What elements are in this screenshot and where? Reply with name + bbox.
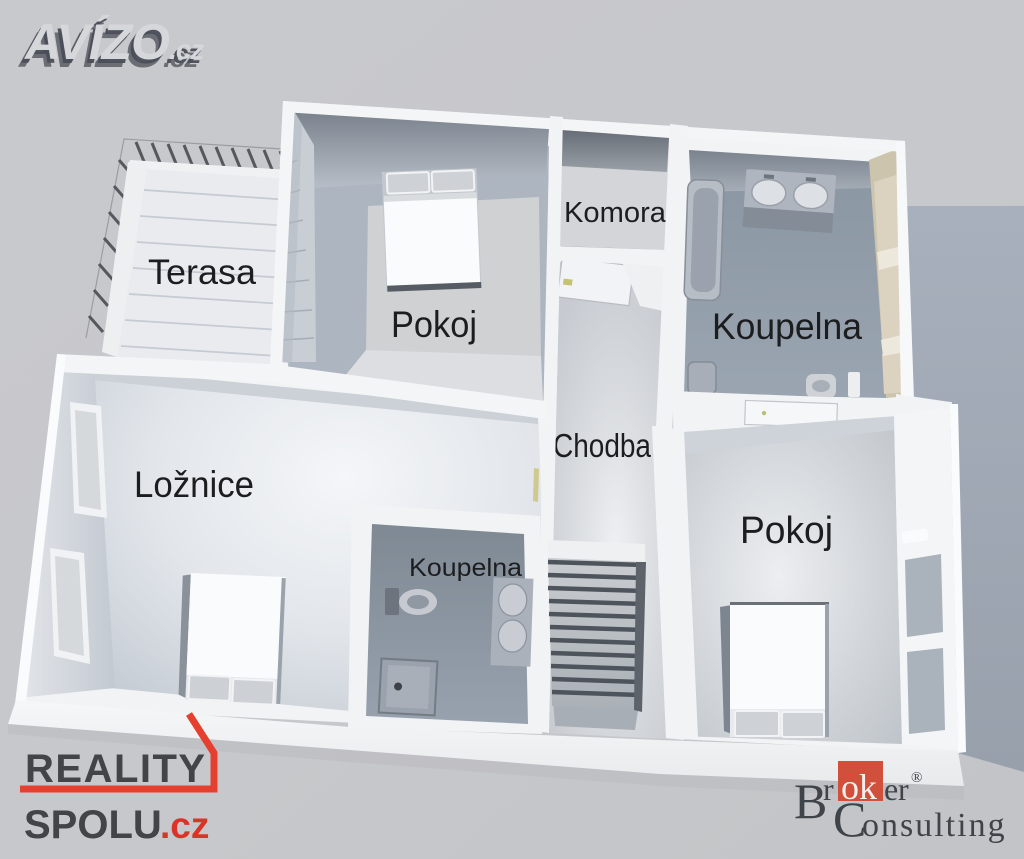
svg-text:Terasa: Terasa	[148, 252, 256, 292]
svg-text:onsulting: onsulting	[862, 807, 1007, 844]
svg-text:Koupelna: Koupelna	[712, 306, 862, 347]
svg-text:SPOLU: SPOLU	[24, 803, 162, 847]
svg-text:Chodba: Chodba	[553, 427, 652, 464]
svg-text:Ložnice: Ložnice	[134, 464, 254, 505]
svg-text:Pokoj: Pokoj	[391, 304, 477, 345]
svg-text:Komora: Komora	[564, 197, 667, 229]
svg-text:Pokoj: Pokoj	[740, 510, 833, 552]
svg-text:r: r	[898, 771, 909, 807]
svg-text:.cz: .cz	[160, 805, 209, 846]
svg-text:Koupelna: Koupelna	[409, 554, 522, 582]
svg-text:REALITY: REALITY	[25, 747, 207, 791]
svg-text:®: ®	[911, 770, 922, 786]
svg-text:e: e	[884, 771, 898, 807]
